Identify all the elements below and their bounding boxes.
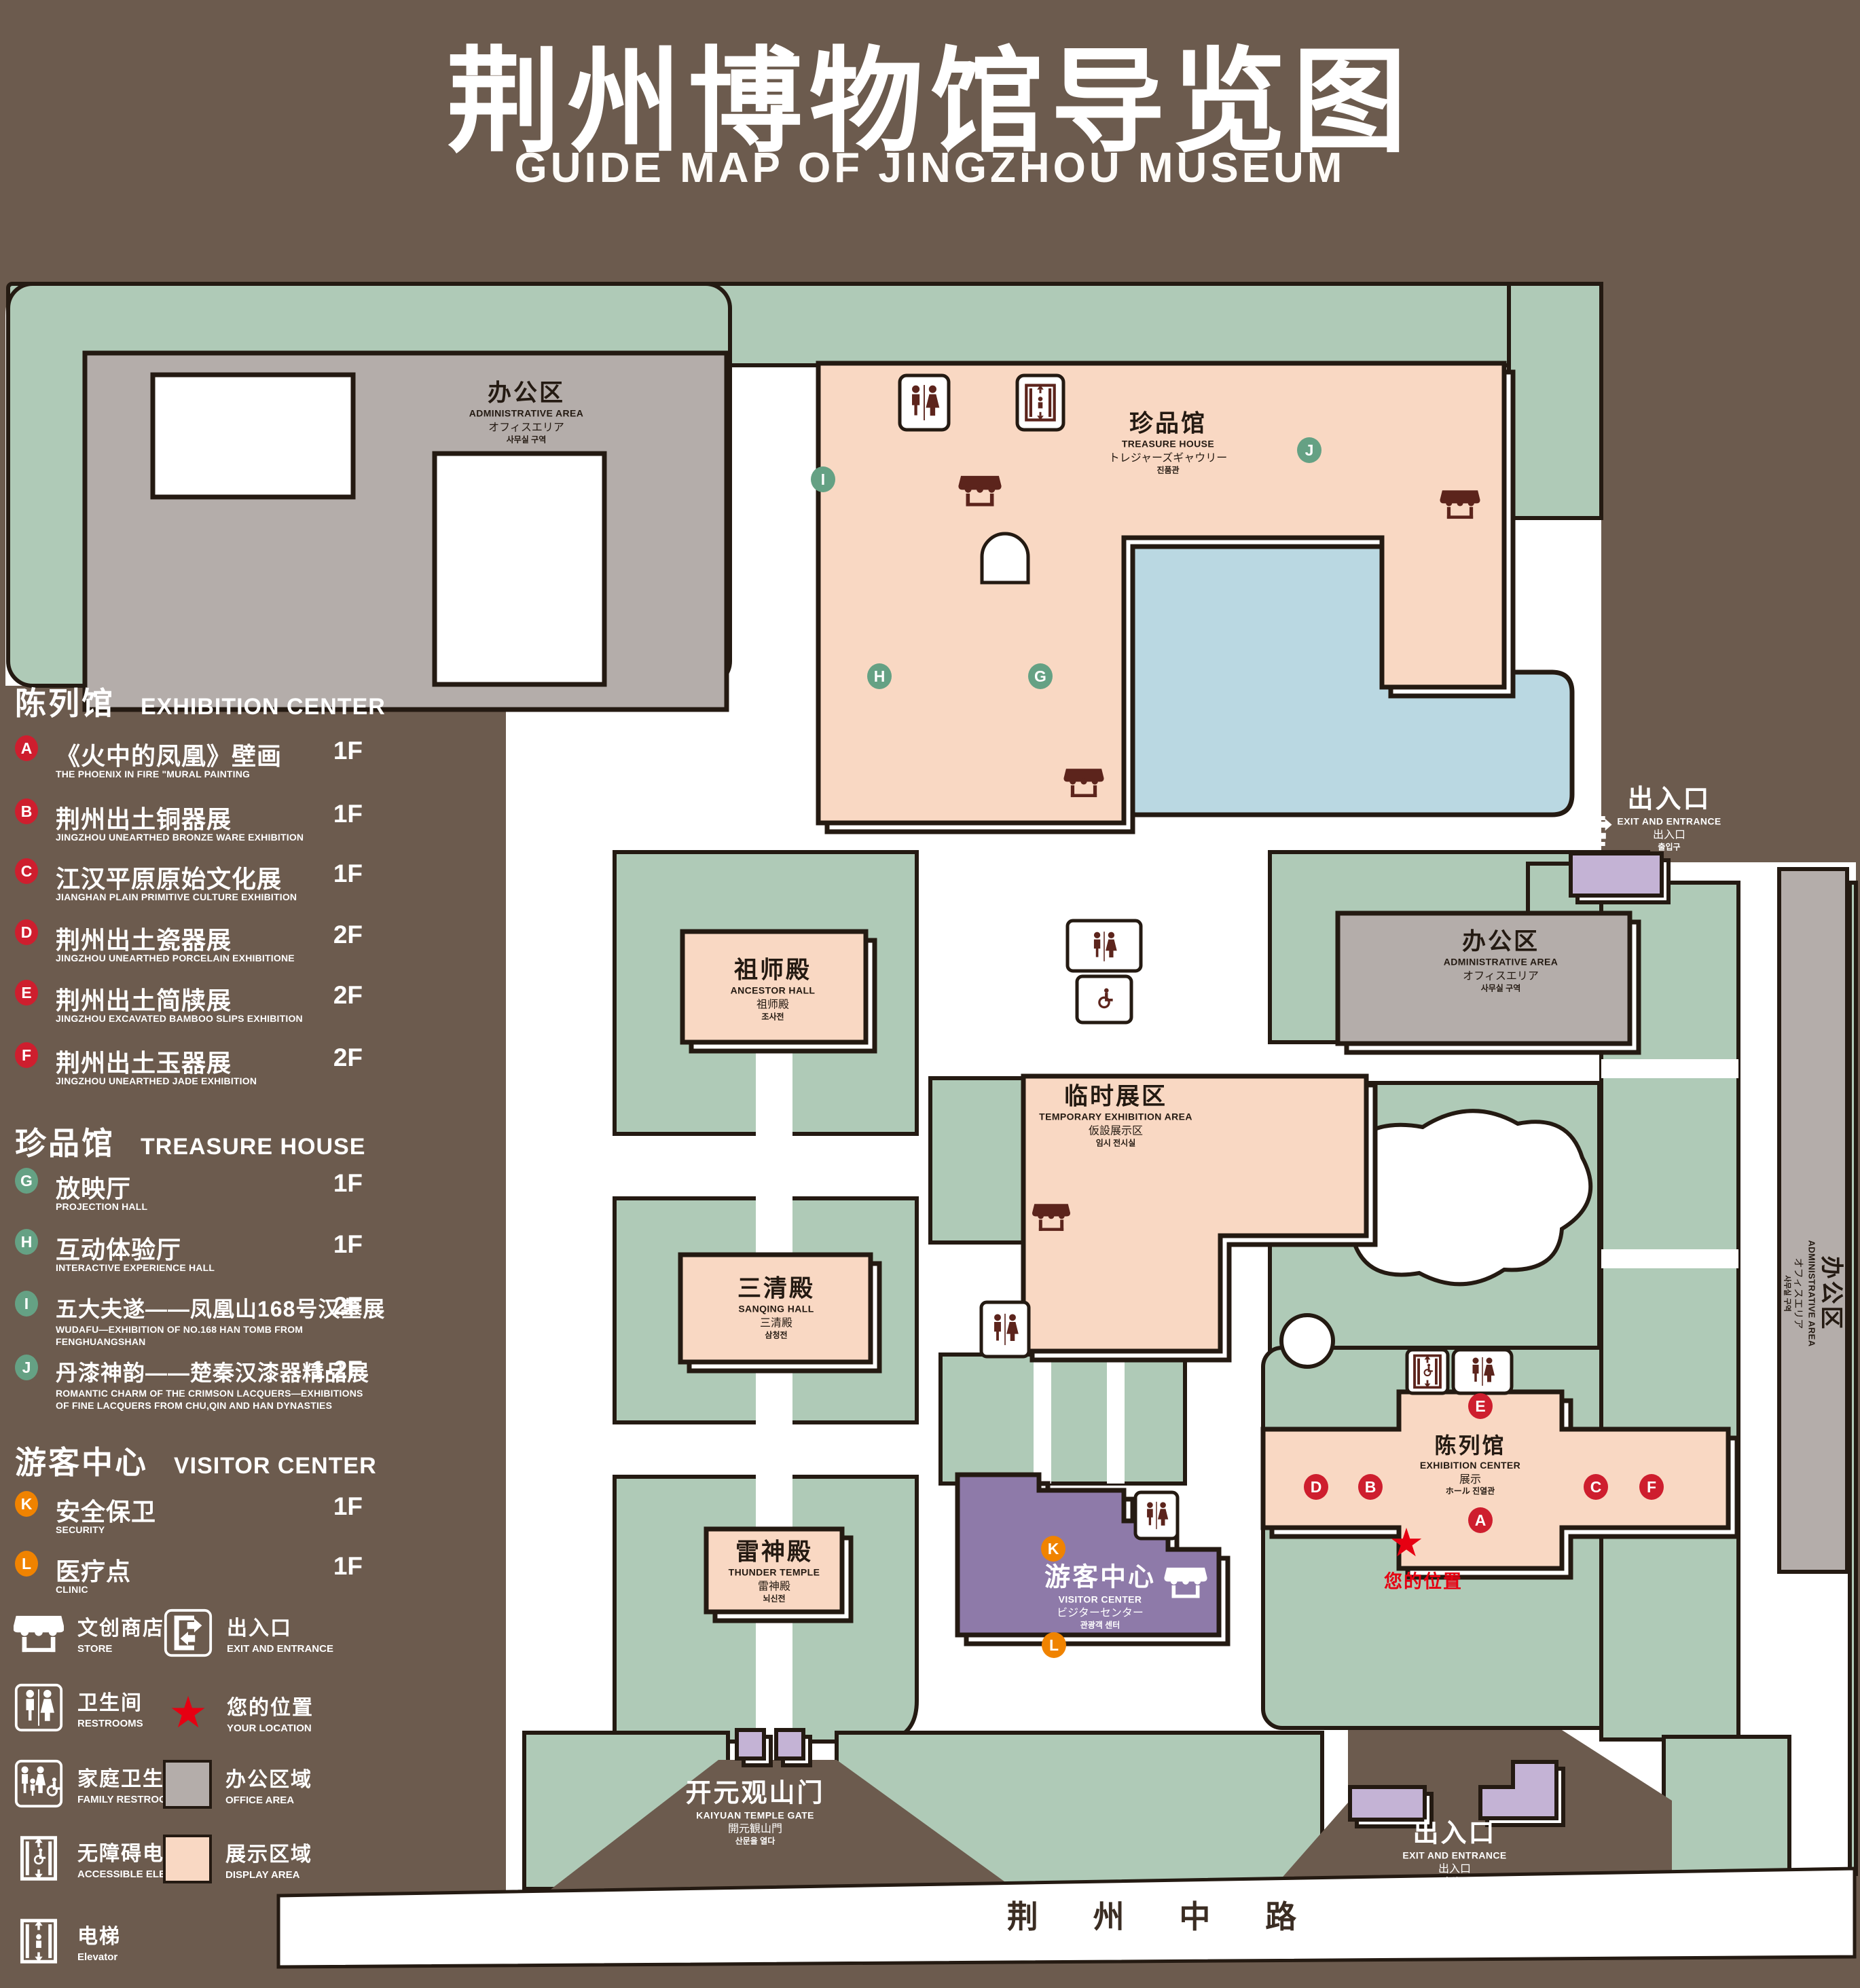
green-visitor-top bbox=[941, 1355, 1185, 1484]
your-location-star: ★ bbox=[1389, 1524, 1424, 1563]
admin-courtyard-b bbox=[435, 454, 604, 684]
gate-kiosk-left bbox=[737, 1730, 764, 1759]
map-label-admin-right: 办公区ADMINISTRATIVE AREA オフィスエリア사무실 구역 bbox=[1444, 928, 1558, 993]
legend-item-f: F 荆州出土玉器展 JINGZHOU UNEARTHED JADE EXHIBI… bbox=[15, 1044, 363, 1101]
legend-item-a: A 《火中的凤凰》壁画 THE PHOENIX IN FIRE "MURAL P… bbox=[15, 737, 363, 794]
badge-k: K bbox=[15, 1491, 38, 1517]
map-marker-i: I bbox=[811, 466, 835, 492]
garden-pond-small bbox=[1281, 1315, 1333, 1367]
legend-section-visitor-center: 游客中心 VISITOR CENTER bbox=[15, 1438, 377, 1483]
legend-item-c: C 江汉平原原始文化展 JIANGHAN PLAIN PRIMITIVE CUL… bbox=[15, 860, 363, 917]
legend-item-l: L 医疗点 CLINIC 1F bbox=[15, 1552, 363, 1609]
map-label-gate: 开元观山门KAIYUAN TEMPLE GATE 開元観山門산문을 열다 bbox=[685, 1780, 824, 1847]
legend-item-d: D 荆州出土瓷器展 JINGZHOU UNEARTHED PORCELAIN E… bbox=[15, 921, 363, 978]
legend-your-location: ★ 您的位置YOUR LOCATION bbox=[163, 1691, 314, 1734]
map-label-visitor-center: 游客中心VISITOR CENTER ビジターセンター관광객 센터 bbox=[1044, 1564, 1156, 1631]
map-label-treasure-house: 珍品馆TREASURE HOUSE トレジャーズギャウリー진품관 bbox=[1109, 410, 1227, 475]
south-exit-kiosk-left bbox=[1350, 1787, 1425, 1820]
map-marker-g: G bbox=[1028, 663, 1053, 689]
map-label-temporary-area: 临时展区TEMPORARY EXHIBITION AREA 仮設展示区임시 전시… bbox=[1039, 1083, 1192, 1147]
green-right-sliver bbox=[1850, 883, 1856, 1874]
badge-i: I bbox=[15, 1291, 38, 1317]
arch-icon bbox=[982, 534, 1028, 583]
guide-map-poster: 荆州博物馆导览图 GUIDE MAP OF JINGZHOU MUSEUM bbox=[0, 0, 1860, 1988]
map-marker-l: L bbox=[1042, 1632, 1066, 1658]
map-marker-e: E bbox=[1468, 1393, 1493, 1419]
elevator-icon bbox=[1025, 384, 1056, 421]
map-marker-a: A bbox=[1468, 1507, 1493, 1533]
green-right-upper bbox=[1509, 284, 1601, 518]
your-location-label: 您的位置 bbox=[1384, 1567, 1463, 1594]
map-label-admin-side: 办公区ADMINISTRATIVE AREA オフィスエリア사무실 구역 bbox=[1783, 1240, 1844, 1346]
legend-elevator: 电梯Elevator bbox=[14, 1916, 121, 1966]
legend-section-exhibition-center: 陈列馆 EXHIBITION CENTER bbox=[15, 679, 386, 724]
badge-d: D bbox=[15, 919, 38, 945]
legend-restrooms: 卫生间RESTROOMS bbox=[14, 1682, 143, 1733]
admin-courtyard-a bbox=[153, 375, 353, 497]
elevator-icon bbox=[14, 1916, 64, 1966]
green-bottom-exit-right bbox=[1664, 1737, 1789, 1876]
accessible-elevator-icon bbox=[14, 1833, 64, 1883]
legend-family-restrooms: 家庭卫生间FAMILY RESTROOMS bbox=[14, 1759, 186, 1809]
badge-e: E bbox=[15, 980, 38, 1006]
map-marker-c: C bbox=[1584, 1474, 1608, 1500]
gate-kiosk-right bbox=[776, 1730, 803, 1759]
map-marker-d: D bbox=[1304, 1474, 1328, 1500]
family-restrooms-icon bbox=[14, 1759, 64, 1809]
map-label-exit-bottom: 出入口EXIT AND ENTRANCE 出入口출입구 bbox=[1402, 1820, 1506, 1887]
building-admin-side bbox=[1779, 869, 1847, 1572]
map-marker-k: K bbox=[1041, 1536, 1065, 1562]
map-label-admin-top: 办公区ADMINISTRATIVE AREA オフィスエリア사무실 구역 bbox=[469, 380, 584, 444]
badge-b: B bbox=[15, 798, 38, 824]
legend-section-treasure-house: 珍品馆 TREASURE HOUSE bbox=[15, 1119, 365, 1164]
badge-j: J bbox=[15, 1355, 38, 1380]
legend-exit: 出入口EXIT AND ENTRANCE bbox=[163, 1608, 333, 1658]
map-label-thunder-temple: 雷神殿THUNDER TEMPLE 雷神殿뇌신전 bbox=[729, 1539, 820, 1603]
legend-item-h: H 互动体验厅 INTERACTIVE EXPERIENCE HALL 1F bbox=[15, 1230, 363, 1287]
exit-icon bbox=[163, 1608, 213, 1658]
legend-item-e: E 荆州出土简牍展 JINGZHOU EXCAVATED BAMBOO SLIP… bbox=[15, 981, 363, 1038]
map-marker-j: J bbox=[1297, 437, 1321, 463]
map-label-exhibition-center: 陈列馆 EXHIBITION CENTER 展示 ホール 진열관 bbox=[1420, 1434, 1520, 1496]
map-label-ancestor-hall: 祖师殿ANCESTOR HALL 祖师殿조사전 bbox=[731, 957, 816, 1021]
legend-item-b: B 荆州出土铜器展 JINGZHOU UNEARTHED BRONZE WARE… bbox=[15, 800, 363, 857]
map-marker-b: B bbox=[1358, 1474, 1383, 1500]
restrooms-icon bbox=[14, 1682, 64, 1733]
legend-office-area: 办公区域OFFICE AREA bbox=[163, 1760, 312, 1809]
badge-c: C bbox=[15, 858, 38, 884]
map-label-exit-top: 出入口EXIT AND ENTRANCE 出入口출입구 bbox=[1617, 786, 1721, 853]
legend-item-g: G 放映厅 PROJECTION HALL 1F bbox=[15, 1169, 363, 1226]
office-area-swatch bbox=[163, 1760, 212, 1809]
badge-a: A bbox=[15, 735, 38, 761]
road-label: 荆 州 中 路 bbox=[1007, 1892, 1319, 1937]
display-area-swatch bbox=[163, 1835, 212, 1883]
badge-g: G bbox=[15, 1168, 38, 1194]
badge-f: F bbox=[15, 1042, 38, 1068]
store-icon bbox=[14, 1608, 64, 1658]
legend-display-area: 展示区域DISPLAY AREA bbox=[163, 1835, 312, 1883]
map-marker-h: H bbox=[867, 663, 892, 689]
legend-item-i: I 五大夫遂——凤凰山168号汉墓展 WUDAFU—EXHIBITION OF … bbox=[15, 1292, 363, 1349]
badge-h: H bbox=[15, 1229, 38, 1255]
badge-l: L bbox=[15, 1551, 38, 1577]
map-label-sanqing-hall: 三清殿SANQING HALL 三清殿삼청전 bbox=[737, 1275, 815, 1340]
map-marker-f: F bbox=[1639, 1474, 1664, 1500]
building-lavender-top-exit bbox=[1571, 853, 1662, 896]
location-star-icon: ★ bbox=[163, 1691, 213, 1734]
legend-store: 文创商店STORE bbox=[14, 1608, 164, 1658]
green-temp-left bbox=[930, 1078, 1023, 1242]
legend-item-j: J 丹漆神韵——楚秦汉漆器精品展 ROMANTIC CHARM OF THE C… bbox=[15, 1356, 363, 1413]
legend-item-k: K 安全保卫 SECURITY 1F bbox=[15, 1492, 363, 1549]
family-tile-mid bbox=[1077, 976, 1131, 1023]
